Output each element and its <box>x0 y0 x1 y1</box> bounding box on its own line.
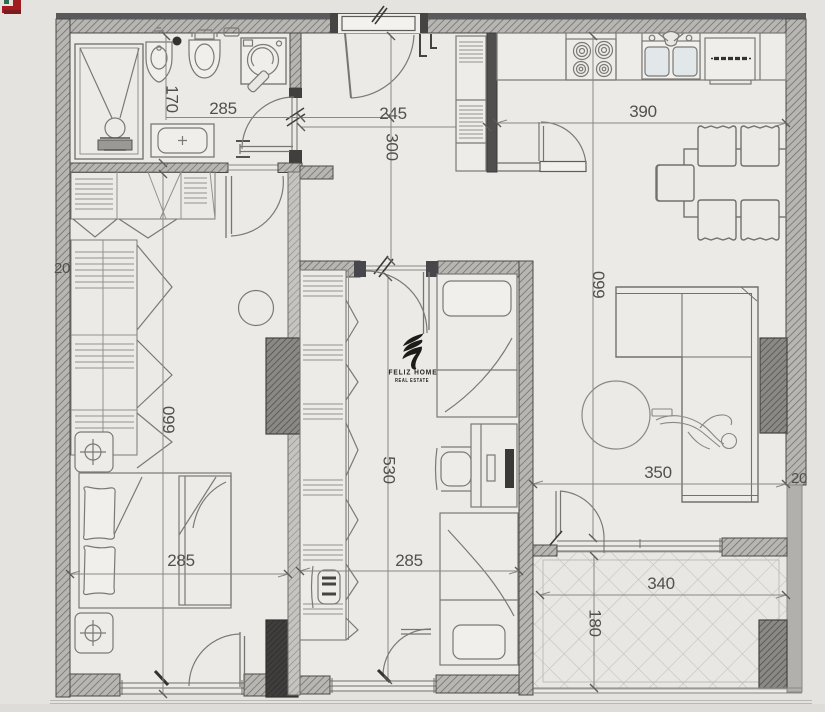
svg-text:285: 285 <box>167 551 194 570</box>
svg-text:340: 340 <box>647 574 674 593</box>
svg-text:20: 20 <box>791 470 807 487</box>
svg-text:170: 170 <box>163 85 182 112</box>
svg-text:660: 660 <box>589 271 608 298</box>
svg-text:REAL ESTATE: REAL ESTATE <box>395 378 429 384</box>
svg-text:530: 530 <box>380 456 399 483</box>
svg-text:180: 180 <box>586 609 605 636</box>
svg-text:FELIZ HOME: FELIZ HOME <box>389 368 438 377</box>
svg-text:350: 350 <box>644 463 671 482</box>
svg-text:390: 390 <box>629 102 656 121</box>
svg-text:285: 285 <box>395 551 422 570</box>
svg-text:20: 20 <box>54 260 70 277</box>
svg-text:285: 285 <box>209 99 236 118</box>
svg-text:660: 660 <box>159 406 178 433</box>
svg-text:300: 300 <box>383 133 402 160</box>
